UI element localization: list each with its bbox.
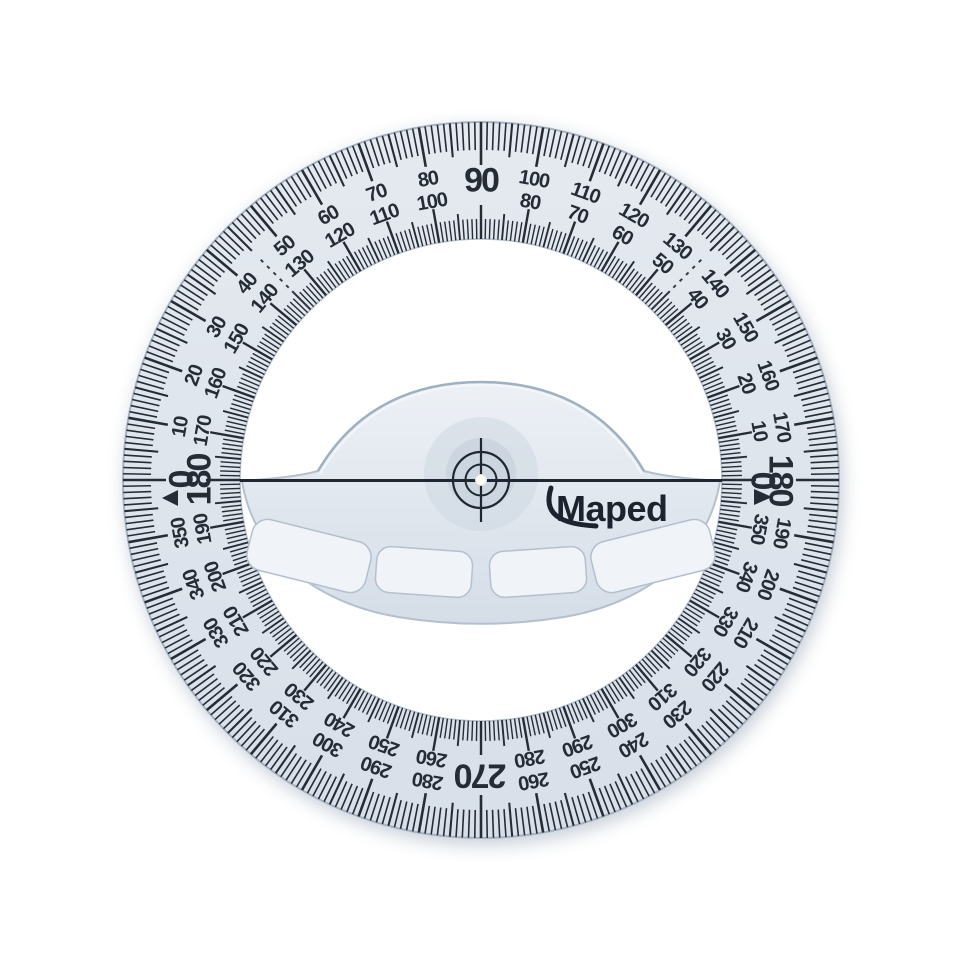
degree-tick <box>811 468 839 469</box>
inner-degree-label-180: 180 <box>181 454 219 506</box>
degree-tick <box>220 488 240 489</box>
degree-tick <box>123 468 151 469</box>
degree-tick <box>123 492 151 493</box>
product-photo: 0102030405060708090100110120130140150160… <box>0 0 962 962</box>
inner-degree-label-0: 0 <box>743 472 781 490</box>
degree-tick <box>220 471 240 472</box>
protractor-photo-svg: 0102030405060708090100110120130140150160… <box>0 0 962 962</box>
degree-tick <box>493 122 494 150</box>
outer-degree-label-270: 270 <box>455 756 507 794</box>
outer-degree-label-90: 90 <box>464 162 499 200</box>
degree-tick <box>722 488 742 489</box>
degree-tick <box>472 721 473 741</box>
degree-tick <box>489 721 490 741</box>
brand-name: Maped <box>556 488 668 529</box>
degree-tick <box>469 810 470 838</box>
degree-tick <box>493 810 494 838</box>
maped-logo: Maped <box>549 488 668 529</box>
degree-tick <box>472 219 473 239</box>
grip-recess <box>489 546 588 599</box>
degree-tick <box>722 471 742 472</box>
grip-recess <box>375 546 474 599</box>
degree-tick <box>489 219 490 239</box>
protractor: 0102030405060708090100110120130140150160… <box>123 122 839 838</box>
degree-tick <box>469 122 470 150</box>
center-dot <box>476 475 487 486</box>
degree-tick <box>811 492 839 493</box>
